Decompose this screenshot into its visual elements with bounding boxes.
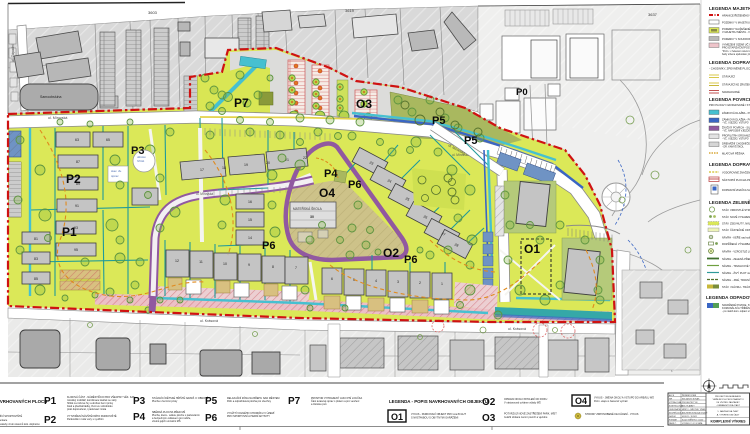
svg-text:ul. Západní: ul. Západní	[11, 44, 15, 62]
svg-text:KONTROLOVAL: KONTROLOVAL	[669, 404, 683, 407]
svg-text:- px nádob kom. odpad. um.: - px nádob kom. odpad. um.	[722, 310, 750, 313]
svg-text:LEGENDA MAJETKOPRÁVNÍCH VZTAHŮ: LEGENDA MAJETKOPRÁVNÍCH VZTAHŮ	[709, 4, 750, 11]
svg-text:22: 22	[303, 156, 307, 160]
svg-text:81: 81	[34, 237, 38, 241]
svg-text:95: 95	[74, 248, 78, 252]
svg-text:A. VÝKRESOVÁ ČÁST: A. VÝKRESOVÁ ČÁST	[717, 414, 740, 417]
svg-text:STUPEŇ DOK.: STUPEŇ DOK.	[669, 411, 682, 414]
svg-text:NÁVRH - TRVALKOVÉ VÝSADBY: NÁVRH - TRVALKOVÉ VÝSADBY	[722, 263, 750, 268]
svg-text:19: 19	[244, 163, 248, 167]
svg-text:ul. Mírovská: ul. Mírovská	[196, 192, 213, 196]
svg-text:úprav: úprav	[111, 174, 119, 178]
svg-text:STÁVAJÍCÍ: STÁVAJÍCÍ	[722, 75, 735, 79]
svg-text:05/2021 - 11/2021: 05/2021 - 11/2021	[682, 416, 697, 418]
svg-text:P0 - STÁVAJÍCÍ SPORTOVIŠTĚ: P0 - STÁVAJÍCÍ SPORTOVIŠTĚ	[0, 415, 22, 418]
svg-text:VYPRACOVAL: VYPRACOVAL	[669, 401, 682, 404]
svg-text:3: 3	[397, 280, 399, 284]
svg-text:LEGENDA ODPADOVÉHO HOSPODÁŘSTV: LEGENDA ODPADOVÉHO HOSPODÁŘSTVÍ	[706, 293, 750, 300]
svg-text:85: 85	[34, 277, 38, 281]
svg-text:3637: 3637	[648, 12, 658, 17]
svg-text:STÁVAJÍCÍ KE ZRUŠENÍ: STÁVAJÍCÍ KE ZRUŠENÍ	[722, 82, 750, 87]
svg-text:KOMPLEXNÍ VÝKRES: KOMPLEXNÍ VÝKRES	[710, 419, 746, 424]
svg-text:Gutičtí obtíané zemní povrch a: Gutičtí obtíané zemní povrch a vjezdné	[504, 416, 548, 419]
svg-text:4: 4	[375, 279, 377, 283]
svg-text:Pozn. etapu s barevně vyznač.: Pozn. etapu s barevně vyznač.	[594, 400, 628, 403]
svg-text:LEGENDA DOPRAVNÍHO ZNAČENÍ: LEGENDA DOPRAVNÍHO ZNAČENÍ	[709, 160, 750, 167]
svg-text:NAVRHOVANÉ: NAVRHOVANÉ	[722, 89, 740, 94]
svg-text:15: 15	[248, 218, 252, 222]
svg-text:- VČ. VJEZDŮ, VSTUPŮ: - VČ. VJEZDŮ, VSTUPŮ	[722, 138, 749, 141]
svg-text:8x A4 / MĚŘÍTKO 1:1000: 8x A4 / MĚŘÍTKO 1:1000	[682, 418, 703, 421]
svg-text:NÁVRH - VZROSTLÉ LISTNATÉ STRO: NÁVRH - VZROSTLÉ LISTNATÉ STROMY	[722, 249, 750, 254]
svg-text:P1: P1	[62, 225, 77, 239]
svg-text:ARCHITEKTONICKÁ STUDIE: ARCHITEKTONICKÁ STUDIE	[682, 411, 708, 414]
svg-text:PARÉ Č.: PARÉ Č.	[669, 422, 677, 425]
svg-text:O2: O2	[482, 397, 496, 408]
svg-text:P5: P5	[432, 115, 445, 127]
svg-text:POZEMKY V MAJETKU MĚSTA: POZEMKY V MAJETKU MĚSTA	[722, 20, 750, 25]
svg-text:3619: 3619	[345, 8, 355, 13]
svg-text:10: 10	[223, 262, 227, 266]
svg-text:2: 2	[419, 281, 421, 285]
svg-text:P6: P6	[404, 254, 417, 266]
svg-text:PROJEKČNÍ TÝM: PROJEKČNÍ TÝM	[682, 401, 698, 404]
svg-text:NÁVRH - ŽIVÝ PLOT stálezelený: NÁVRH - ŽIVÝ PLOT stálezelený	[722, 270, 750, 275]
svg-text:Samoobsluha: Samoobsluha	[40, 95, 61, 99]
svg-text:LEGENDA POVRCHŮ ZPEVNĚNÝCH PLO: LEGENDA POVRCHŮ ZPEVNĚNÝCH PLOCH	[709, 95, 750, 102]
svg-text:65: 65	[106, 138, 110, 142]
svg-text:P2: P2	[44, 415, 57, 426]
svg-text:- CHODNÍKY, ZPEVNĚNÉ PLOCHY: - CHODNÍKY, ZPEVNĚNÉ PLOCHY	[709, 66, 750, 71]
svg-text:NÁVRH - ZELENÁ PŘEDĚLOVÁ STĚNA: NÁVRH - ZELENÁ PŘEDĚLOVÁ STĚNA	[722, 256, 750, 261]
svg-text:O3: O3	[356, 97, 372, 111]
svg-text:MLATOVÁ PĚŠINA: MLATOVÁ PĚŠINA	[722, 151, 745, 156]
svg-text:1. NÁVRHOVÁ ČÁST: 1. NÁVRHOVÁ ČÁST	[717, 410, 739, 413]
svg-text:P6: P6	[262, 240, 275, 252]
svg-text:91: 91	[75, 204, 79, 208]
svg-text:S NÁSTAVBOU S OBYTNÝMI GARÁŽEM: S NÁSTAVBOU S OBYTNÝMI GARÁŽEMI	[411, 417, 459, 420]
svg-text:9: 9	[248, 263, 250, 267]
svg-text:Pěší a odpočinková plocha pro: Pěší a odpočinková plocha pro všechny	[227, 400, 272, 403]
svg-text:LEGENDA - POPIS NAVRHOVANÝCH P: LEGENDA - POPIS NAVRHOVANÝCH PLOCH	[0, 399, 47, 404]
svg-text:P5: P5	[205, 396, 218, 407]
svg-text:P6: P6	[205, 413, 218, 424]
svg-text:P6: P6	[348, 179, 361, 191]
svg-text:STÁV. VZROSTLÉ STROMY: STÁV. VZROSTLÉ STROMY	[722, 207, 750, 212]
svg-text:- DR. KAMYŠ ŠKOL: - DR. KAMYŠ ŠKOL	[722, 146, 744, 149]
svg-text:AKCE: AKCE	[669, 394, 675, 397]
svg-text:hřiště: hřiště	[137, 159, 145, 163]
svg-text:bude dokumentace: bude dokumentace	[0, 419, 8, 422]
svg-text:16: 16	[248, 200, 252, 204]
svg-text:O4: O4	[319, 186, 335, 200]
svg-text:O4: O4	[575, 396, 587, 406]
svg-text:NÁVRH - JINÉ, TRAVNÍ POROSTY: NÁVRH - JINÉ, TRAVNÍ POROSTY	[722, 277, 750, 282]
svg-text:NÁSTUPNÍ PLOCHA PRO POŽÁRNÍ TE: NÁSTUPNÍ PLOCHA PRO POŽÁRNÍ TECHNIKU	[722, 177, 750, 182]
svg-text:14: 14	[248, 236, 252, 240]
svg-text:ul. Krásová: ul. Krásová	[508, 327, 526, 331]
svg-text:VE VNITRU ZÁSTAVBY: VE VNITRU ZÁSTAVBY	[716, 401, 740, 404]
svg-text:MĚSTO - MĚSTSKÝ ÚŘAD: MĚSTO - MĚSTSKÝ ÚŘAD	[682, 408, 706, 411]
svg-text:ROZŠÍŘENÁ VÝSADBA KVĚTIN: ROZŠÍŘENÁ VÝSADBA KVĚTIN	[722, 241, 750, 246]
svg-text:- VČ. VJEZDŮ, VSTUPŮ: - VČ. VJEZDŮ, VSTUPŮ	[722, 122, 749, 125]
svg-text:PRO PLOCHY NAVRHOVANÉ I STÁVAJ: PRO PLOCHY NAVRHOVANÉ I STÁVAJÍCÍ	[709, 102, 750, 107]
svg-text:ZÁMKOVÁ DLAŽBA - POCHOZÍ: ZÁMKOVÁ DLAŽBA - POCHOZÍ	[722, 110, 750, 115]
svg-text:LEGENDA DOPRAVNÍCH STAVEB: LEGENDA DOPRAVNÍCH STAVEB	[709, 58, 750, 65]
svg-text:při návrhu zástavby změn stavm: při návrhu zástavby změn stavmů dok. dop…	[0, 423, 40, 426]
svg-text:DOPRAVNÍ ZNAČKA SVISLÁ VČ. OZN: DOPRAVNÍ ZNAČKA SVISLÁ VČ. OZNAČENÍ	[722, 187, 750, 192]
svg-text:STROMY ZDPOSOBENÉ KE KÁCENÍ -: STROMY ZDPOSOBENÉ KE KÁCENÍ - VYKUS	[585, 413, 639, 416]
svg-text:O1: O1	[391, 412, 403, 422]
svg-text:- URBANISTICKÁ ČÁST: - URBANISTICKÁ ČÁST	[716, 404, 741, 407]
svg-text:body určené spoluvlast. jiných: body určené spoluvlast. jiných subjektů	[722, 53, 750, 56]
svg-text:VEŘEJNÝCH PROSTRANSTVÍ: VEŘEJNÝCH PROSTRANSTVÍ	[713, 398, 744, 401]
svg-text:17: 17	[200, 168, 204, 172]
svg-text:POZEMKY V SOUKROMÉM VLASTNICTV: POZEMKY V SOUKROMÉM VLASTNICTVÍ	[722, 36, 750, 41]
svg-text:pratí doporučeně, i parkovací: pratí doporučeně, i parkovací místa	[67, 408, 107, 411]
svg-text:83: 83	[34, 257, 38, 261]
svg-text:P2: P2	[66, 172, 81, 186]
svg-text:DATUM: DATUM	[669, 415, 676, 418]
svg-text:OBJEDNATEL: OBJEDNATEL	[669, 408, 681, 411]
svg-text:VÝKRES Č. 02 / ETAPA: VÝKRES Č. 02 / ETAPA	[682, 422, 703, 425]
svg-text:O1: O1	[524, 242, 540, 256]
svg-text:LEGENDA ZELENĚ: LEGENDA ZELENĚ	[709, 198, 750, 205]
svg-text:STÁV. ČÁSTEČNĚ ODSTRANĚNÉ DŘEV: STÁV. ČÁSTEČNĚ ODSTRANĚNÉ DŘEVINY	[722, 227, 750, 232]
svg-text:- VČ. NAPOJENÍ VJEZDŮ: - VČ. NAPOJENÍ VJEZDŮ	[722, 130, 750, 133]
svg-text:VODOROVNÉ ZNAČENÍ - VYHRAZENÁ: VODOROVNÉ ZNAČENÍ - VYHRAZENÁ STÁNÍ	[722, 170, 750, 175]
svg-text:FORMÁT: FORMÁT	[669, 418, 678, 421]
svg-text:ŘEŠENÉ ÚZEMÍ: ŘEŠENÉ ÚZEMÍ	[682, 394, 697, 397]
svg-text:11: 11	[199, 260, 203, 264]
svg-text:ING. HLAVATÝ: ING. HLAVATÝ	[682, 404, 695, 407]
svg-text:Parkoviště i mola vozy s využi: Parkoviště i mola vozy s využitím	[67, 418, 104, 421]
svg-text:NÁVRH - KEŘE nad soliterní: NÁVRH - KEŘE nad soliterní	[722, 235, 750, 240]
svg-text:6: 6	[331, 277, 333, 281]
svg-text:87: 87	[76, 160, 80, 164]
svg-text:30: 30	[310, 215, 314, 219]
svg-text:HRANICE ŘEŠENÉHO ÚZEMÍ: HRANICE ŘEŠENÉHO ÚZEMÍ	[722, 13, 750, 18]
svg-text:STÁV. NOVĚ VYSAZENÉ STROMY: STÁV. NOVĚ VYSAZENÉ STROMY	[722, 214, 750, 219]
svg-text:stav. dv.: stav. dv.	[111, 169, 122, 173]
svg-text:LEGENDA - POPIS NAVRHOVANÝCH O: LEGENDA - POPIS NAVRHOVANÝCH OBJEKTŮ	[389, 399, 488, 404]
svg-text:PRO SPORTOVNÍ A HERNÍ AKTIVITY: PRO SPORTOVNÍ A HERNÍ AKTIVITY	[227, 415, 270, 418]
svg-text:8: 8	[272, 265, 274, 269]
svg-text:P3: P3	[133, 396, 146, 407]
svg-text:Plocha s herními prvky: Plocha s herními prvky	[152, 400, 178, 403]
svg-text:a čistotou psů: a čistotou psů	[311, 403, 327, 406]
svg-text:P4: P4	[133, 412, 146, 423]
svg-text:7: 7	[295, 266, 297, 270]
svg-text:3603: 3603	[148, 10, 158, 15]
svg-text:18: 18	[222, 166, 226, 170]
svg-text:ul. Mírovská: ul. Mírovská	[48, 116, 67, 120]
svg-text:STÁV. / NÁVRH - TRÁVNÍK: STÁV. / NÁVRH - TRÁVNÍK	[722, 285, 750, 289]
svg-text:12: 12	[175, 259, 179, 263]
svg-text:P4: P4	[324, 168, 338, 180]
svg-text:1: 1	[441, 282, 443, 286]
svg-text:P7: P7	[234, 96, 249, 110]
svg-text:P1: P1	[44, 396, 57, 407]
svg-text:P3: P3	[131, 145, 144, 157]
svg-text:P0: P0	[516, 87, 528, 98]
svg-text:MATEŘSKÁ ŠKOLA: MATEŘSKÁ ŠKOLA	[293, 206, 323, 211]
svg-text:63: 63	[75, 138, 79, 142]
svg-text:ul. Krásová: ul. Krásová	[200, 319, 218, 323]
svg-text:STÁV. ZSEVNUTÝ, NÁLET. POROST: STÁV. ZSEVNUTÝ, NÁLET. POROST	[722, 222, 750, 226]
svg-text:20: 20	[266, 161, 270, 165]
svg-text:V nástavnosti uvítáme výkaly M: V nástavnosti uvítáme výkaly MŠ	[504, 402, 541, 405]
svg-text:O2: O2	[383, 246, 399, 260]
svg-text:P5: P5	[464, 135, 477, 147]
svg-text:ING. ARCH. NOVÁK: ING. ARCH. NOVÁK	[682, 397, 700, 400]
svg-text:O3: O3	[482, 413, 496, 424]
svg-text:včetně jejich umístění MŠ: včetně jejich umístění MŠ	[152, 420, 181, 423]
svg-text:P7: P7	[288, 396, 301, 407]
svg-text:PROJEKT REGENERACE: PROJEKT REGENERACE	[715, 395, 742, 398]
